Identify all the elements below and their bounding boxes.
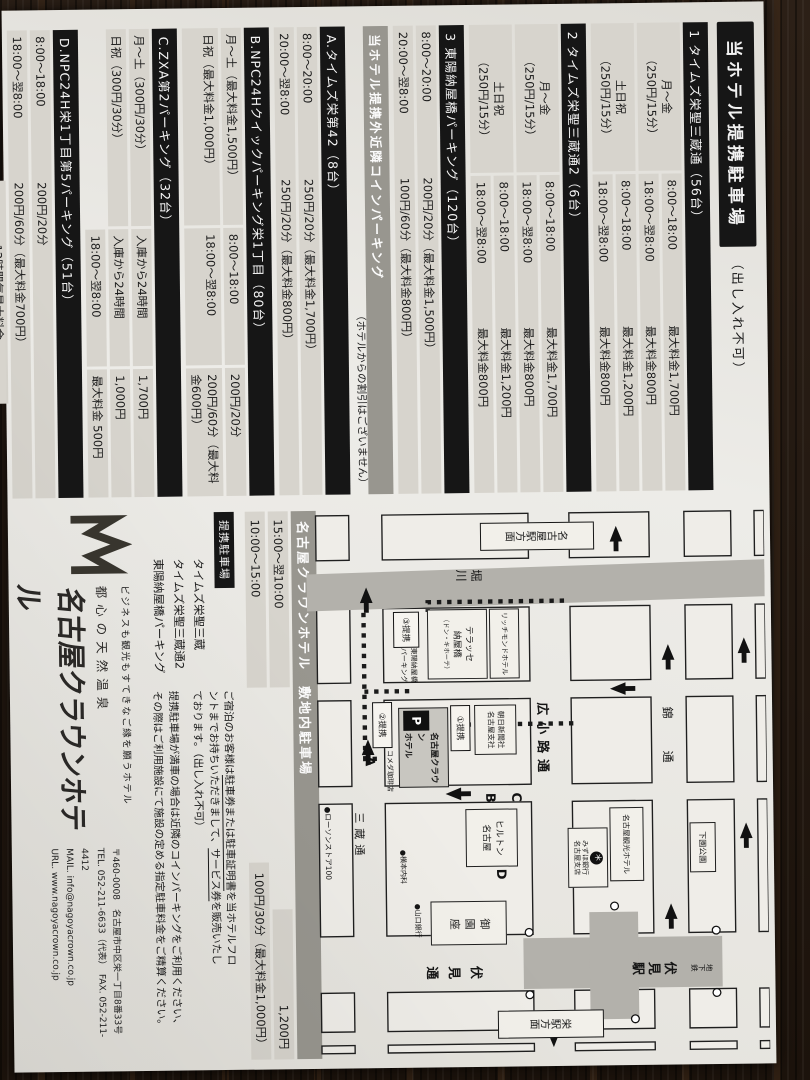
fee-value: 最大料金1,200円 <box>619 318 637 485</box>
time-range: 18:00～翌8:00 <box>641 180 659 318</box>
fee-group: 月～金（250円/15分） 8:00～18:00最大料金1,700円 18:00… <box>515 24 564 492</box>
hotel-name-logotype: 名古屋クラウンホテル <box>9 582 97 852</box>
time-range: 8:00～18:00 <box>542 181 560 319</box>
fee-value: 100円/60分（最大料金800円） <box>397 170 417 488</box>
fee-row: 月～土（300円/30分）入庫から24時間1,700円 <box>129 29 155 497</box>
time-range: 15:00～翌10:00 <box>268 511 290 687</box>
horikawa-river-label: 堀川 <box>452 567 482 584</box>
period-label: 月～金 <box>659 79 674 114</box>
time-range: 8:00～18:00 <box>223 228 245 365</box>
fee-row: 8:00～18:00最大料金1,700円 <box>662 173 686 490</box>
fee-value: 250円/20分（最大料金800円） <box>278 171 298 489</box>
rate-label: （250円/15分） <box>598 54 613 141</box>
hotel-address: 〒460-0008 名古屋市中区栄一丁目8番33号 <box>106 848 124 1060</box>
fee-value: 200円/20分 <box>34 174 54 492</box>
guest-parking-notice: ご宿泊のお客様は駐車券または駐車証明書を当ホテルフロ ントまでお持ちいただきまし… <box>148 690 242 1061</box>
misonoza-theater: 御園座 <box>430 901 507 946</box>
hotel-tagline: ビジネスも観光もすてきなご縁を願うホテル <box>119 585 136 847</box>
time-range: 18:00～翌8:00 <box>184 228 222 365</box>
time-range: 18:00～翌8:00 <box>9 36 27 174</box>
period-label: 月～金 <box>537 81 552 116</box>
coin-lot-b: B.NPC24Hクイックパーキング栄1丁目（80台） 月～土（最大料金1,500… <box>182 27 275 496</box>
fushimi-street-label: 伏見通 <box>417 961 483 981</box>
lawson-store-100: ●ローソンストア100 <box>322 807 334 880</box>
sakae-station-direction-sign: 栄駅方面 <box>498 1009 604 1038</box>
arrow-left-icon <box>737 637 750 662</box>
fee-value: 最大料金800円 <box>642 318 660 485</box>
fee-value: 200円/60分（最大料金600円） <box>186 368 224 496</box>
fee-value: 最大料金1,200円 <box>497 319 515 486</box>
fee-value: 1,700円 <box>133 369 155 497</box>
yamaguchi-bank: ●山口銀行 <box>412 904 422 938</box>
fee-group: 月～金（250円/15分） 8:00～18:00最大料金1,700円 18:00… <box>637 22 686 490</box>
full-lot-notice: 提携駐車場が満車の場合は近隣のコインパーキングをご利用ください、 その際はご利用… <box>148 691 184 1061</box>
period-label: 月～土（最大料金1,500円） <box>221 28 243 225</box>
time-range: 18:00～翌8:00 <box>595 180 613 318</box>
coin-lot-b-header: B.NPC24Hクイックパーキング栄1丁目（80台） <box>244 27 275 495</box>
time-range: 18:00～翌8:00 <box>473 182 491 320</box>
nagoya-station-direction-sign: 名古屋駅方面 <box>480 521 594 550</box>
coin-lot-c-header: C.ZXA第2パーキング（32台） <box>152 29 183 497</box>
time-range: 18:00～翌8:00 <box>85 229 107 366</box>
coin-lot-d-marker: D <box>493 869 508 880</box>
fee-value: 1,200円 <box>273 909 295 1059</box>
area-map: 堀川 錦 通 広小路通 三蔵通 伏見通 地下鉄 伏見駅 名古屋駅方面 栄駅方面 … <box>318 505 770 1058</box>
flyer-title-row: 当ホテル提携駐車場 （出し入れ不可） <box>717 22 760 490</box>
hirokoji-street-label: 広小路通 <box>534 702 554 778</box>
fee-row: 日祝（最大料金1,000円）18:00～翌8:00200円/60分（最大料金60… <box>182 28 224 496</box>
time-range: 20:00～翌8:00 <box>395 32 413 170</box>
period-label <box>83 29 105 226</box>
hotel-url: URL. www.nagoyacrown.co.jp <box>45 848 63 1060</box>
fee-value: 最大料金 500円 <box>87 369 109 497</box>
fee-row: 15:00～翌10:001,200円 <box>268 511 295 1059</box>
time-range: 18:00～翌8:00 <box>519 181 537 319</box>
rate-label: （250円/15分） <box>522 55 537 142</box>
fee-value: 200円/20分（最大料金1,500円） <box>420 169 440 487</box>
horikawa-river <box>306 559 765 611</box>
map-geometry <box>306 505 771 1059</box>
list-item: 東陽納屋橋パーキング <box>148 559 170 691</box>
rotated-flyer: 当ホテル提携駐車場 （出し入れ不可） 1 タイムズ栄聖三蔵通（56台） 月～金（… <box>0 0 810 1080</box>
partner-lot-1: 1 タイムズ栄聖三蔵通（56台） 月～金（250円/15分） 8:00～18:0… <box>591 22 714 491</box>
richmond-hotel: リッチモンドホテル <box>489 608 520 678</box>
fee-value: 最大料金1,700円 <box>665 317 683 484</box>
hotel-identity: ビジネスも観光もすてきなご縁を願うホテル 都心の天然温泉 名古屋クラウンホテル … <box>12 513 139 1062</box>
mizuho-bank: ＊ みずほ銀行名古屋支店 <box>568 827 609 887</box>
fee-row: 18:00～翌8:00最大料金800円 <box>517 175 541 492</box>
fee-row: 18:00～翌8:00最大料金800円 <box>639 174 663 491</box>
fee-row: 8:00～18:00最大料金1,700円 <box>540 175 564 492</box>
time-range: 入庫から24時間 <box>108 229 130 366</box>
tieup-title: 提携駐車場 <box>214 512 235 588</box>
fee-value: 200円/20分 <box>225 368 247 496</box>
rate-label: （250円/15分） <box>644 53 659 140</box>
period-label: 土日祝 <box>491 81 506 116</box>
fee-table: 当ホテル提携駐車場 （出し入れ不可） 1 タイムズ栄聖三蔵通（56台） 月～金（… <box>10 22 760 499</box>
fee-row: 8:00～18:00最大料金1,200円 <box>616 174 640 491</box>
fee-row: 8:00～18:00200円/20分 <box>30 30 56 498</box>
arrow-down-icon <box>610 682 635 695</box>
fee-value: 250円/20分（最大料金1,700円） <box>301 171 321 489</box>
partner-lot-3-header: 3 東陽納屋橋パーキング（120台） <box>439 25 470 493</box>
coin-lot-d: D.NPC24H栄1丁目第5パーキング（51台） 8:00～18:00200円/… <box>0 30 83 499</box>
coin-lot-a: A.タイムズ栄第42（8台） 8:00～20:00250円/20分（最大料金1,… <box>274 27 351 496</box>
time-range: 8:00～18:00 <box>32 36 50 174</box>
rate-label: （250円/15分） <box>476 55 491 142</box>
coin-lot-c-marker: C <box>508 792 523 802</box>
fee-group: 土日祝（250円/15分） 8:00～18:00最大料金1,200円 18:00… <box>591 23 640 491</box>
komeda-coffee: コメダ珈琲店 <box>385 750 396 792</box>
partner-lot-3: 3 東陽納屋橋パーキング（120台） 8:00～20:00200円/20分（最大… <box>393 25 470 494</box>
flyer-title-note: （出し入れ不可） <box>729 257 749 377</box>
coin-lot-b-marker: B <box>482 793 497 803</box>
hotel-contact-block: 〒460-0008 名古屋市中区栄一丁目8番33号 TEL. 052-211-6… <box>45 847 138 1062</box>
fee-row: 18:00～翌8:00200円/60分（最大料金700円） <box>7 30 33 498</box>
shimozono-park: 下園公園 <box>690 822 717 872</box>
fee-value: 最大料金800円 <box>520 319 538 486</box>
tieup-section: 提携駐車場 タイムズ栄聖三蔵 タイムズ栄聖三蔵通2 東陽納屋橋パーキング ご宿泊… <box>146 512 242 1061</box>
yokomoto-clinic: ●横本内科 <box>398 850 408 884</box>
arrow-left-icon <box>665 903 678 928</box>
hotel-mail: MAIL. info@nagoyacrown.co.jp <box>61 848 79 1060</box>
time-range: 8:00～18:00 <box>496 181 514 319</box>
partner-lot-3-marker: ③提携 <box>393 612 419 648</box>
fee-value: 最大料金1,700円 <box>543 319 561 486</box>
coin-lot-d-header: D.NPC24H栄1丁目第5パーキング（51台） <box>53 30 84 498</box>
fee-value: 200円/60分（最大料金700円） <box>11 174 31 492</box>
time-range: 8:00～18:00 <box>618 180 636 318</box>
fee-value: 最大料金800円 <box>596 318 614 485</box>
nagoya-crown-hotel-building: P 名古屋クラウンホテル <box>398 707 449 788</box>
hilton-nagoya: ヒルトン名古屋 <box>465 808 518 867</box>
12h-max-fee: 12時間毎最大料金2,000円 <box>0 181 8 404</box>
parking-flyer-paper: 当ホテル提携駐車場 （出し入れ不可） 1 タイムズ栄聖三蔵通（56台） 月～金（… <box>2 1 777 1072</box>
coin-lot-a-marker: A <box>362 756 377 766</box>
bank-icon: ＊ <box>590 851 603 864</box>
time-range: 20:00～翌8:00 <box>276 33 294 171</box>
hotel-parking-p-icon: P <box>403 711 429 731</box>
fee-row: 20:00～翌8:00100円/60分（最大料金800円） <box>393 26 419 494</box>
arrow-left-icon <box>740 822 753 847</box>
arrow-left-icon <box>662 644 675 669</box>
map-and-info: 堀川 錦 通 広小路通 三蔵通 伏見通 地下鉄 伏見駅 名古屋駅方面 栄駅方面 … <box>12 505 771 1062</box>
period-label: 土日祝 <box>613 80 628 115</box>
coin-lot-a-header: A.タイムズ栄第42（8台） <box>320 27 351 495</box>
partner-lot-1-marker: ①提携 <box>450 705 471 751</box>
fushimi-station-label: 伏見駅 <box>629 957 677 977</box>
fee-row: 月～土（最大料金1,500円）8:00～18:00200円/20分 <box>221 28 247 496</box>
time-range: 8:00～20:00 <box>299 33 317 171</box>
period-label: 日祝（最大料金1,000円） <box>182 28 220 225</box>
partner-lot-2: 2 タイムズ栄聖三蔵通2（6台） 月～金（250円/15分） 8:00～18:0… <box>469 24 592 493</box>
partner-lot-1-header: 1 タイムズ栄聖三蔵通（56台） <box>683 22 714 490</box>
fee-row: 日祝（300円/30分）入庫から24時間1,000円 <box>106 29 132 497</box>
nagoya-kanko-hotel: 名古屋観光ホテル <box>609 807 644 881</box>
fee-row: 8:00～20:00250円/20分（最大料金1,700円） <box>297 27 323 495</box>
fee-row: 18:00～翌8:00最大料金 500円 <box>83 29 109 497</box>
hotel-logo-icon <box>58 513 133 576</box>
subway-label: 地下鉄 <box>691 962 714 973</box>
arrow-down-icon <box>445 787 470 800</box>
crown-hotel-label: 名古屋クラウンホテル <box>401 732 440 786</box>
list-item: タイムズ栄聖三蔵 <box>189 558 211 690</box>
fee-value: 最大料金800円 <box>474 320 492 487</box>
time-range: 入庫から24時間 <box>131 229 153 366</box>
time-range: 10:00～15:00 <box>245 512 267 688</box>
fee-row: 20:00～翌8:00250円/20分（最大料金800円） <box>274 27 300 495</box>
asahi-shimbun-building: 朝日新聞社名古屋支社 <box>474 704 517 755</box>
hotel-tel-fax: TEL. 052-211-6633（代表） FAX. 052-211-4412 <box>76 848 109 1060</box>
fee-row: 18:00～翌8:00最大料金800円 <box>593 174 617 491</box>
flyer-title: 当ホテル提携駐車場 <box>717 22 757 247</box>
coin-lot-c: C.ZXA第2パーキング（32台） 月～土（300円/30分）入庫から24時間1… <box>83 29 183 498</box>
terrasse-nayabashi: テラッセ納屋橋 （ドン・キホーテ） <box>427 609 488 680</box>
wood-table-background: 当ホテル提携駐車場 （出し入れ不可） 1 タイムズ栄聖三蔵通（56台） 月～金（… <box>0 0 810 1080</box>
time-range: 8:00～20:00 <box>418 31 436 169</box>
sanzo-street-label: 三蔵通 <box>351 812 368 860</box>
fee-group: 土日祝（250円/15分） 8:00～18:00最大料金1,200円 18:00… <box>469 24 518 492</box>
partner-lot-2-marker: ②提携 <box>372 702 393 748</box>
time-range: 8:00～18:00 <box>664 179 682 317</box>
list-item: タイムズ栄聖三蔵通2 <box>168 558 190 690</box>
fee-row: 10:00～15:00100円/30分（最大料金1,000円） <box>245 512 272 1060</box>
coin-parking-section-header: 当ホテル提携外近隣コインパーキング （ホテルからの割引はございません） <box>350 26 394 494</box>
period-label: 日祝（300円/30分） <box>106 29 128 226</box>
toyo-nayabashi-parking-label: 東陽納屋橋パーキング <box>398 648 418 683</box>
fee-row: 8:00～18:00最大料金1,200円 <box>494 175 518 492</box>
partner-lot-2-header: 2 タイムズ栄聖三蔵通2（6台） <box>561 24 592 492</box>
fee-value: 100円/30分（最大料金1,000円） <box>249 863 271 1060</box>
nishiki-street-label: 錦 通 <box>659 707 677 773</box>
fee-row: 18:00～翌8:00最大料金800円 <box>471 176 495 493</box>
fee-value: 1,000円 <box>110 369 132 497</box>
fee-row: 8:00～20:00200円/20分（最大料金1,500円） <box>416 25 442 493</box>
period-label: 月～土（300円/30分） <box>129 29 151 226</box>
tieup-lot-list: タイムズ栄聖三蔵 タイムズ栄聖三蔵通2 東陽納屋橋パーキング <box>148 558 210 691</box>
